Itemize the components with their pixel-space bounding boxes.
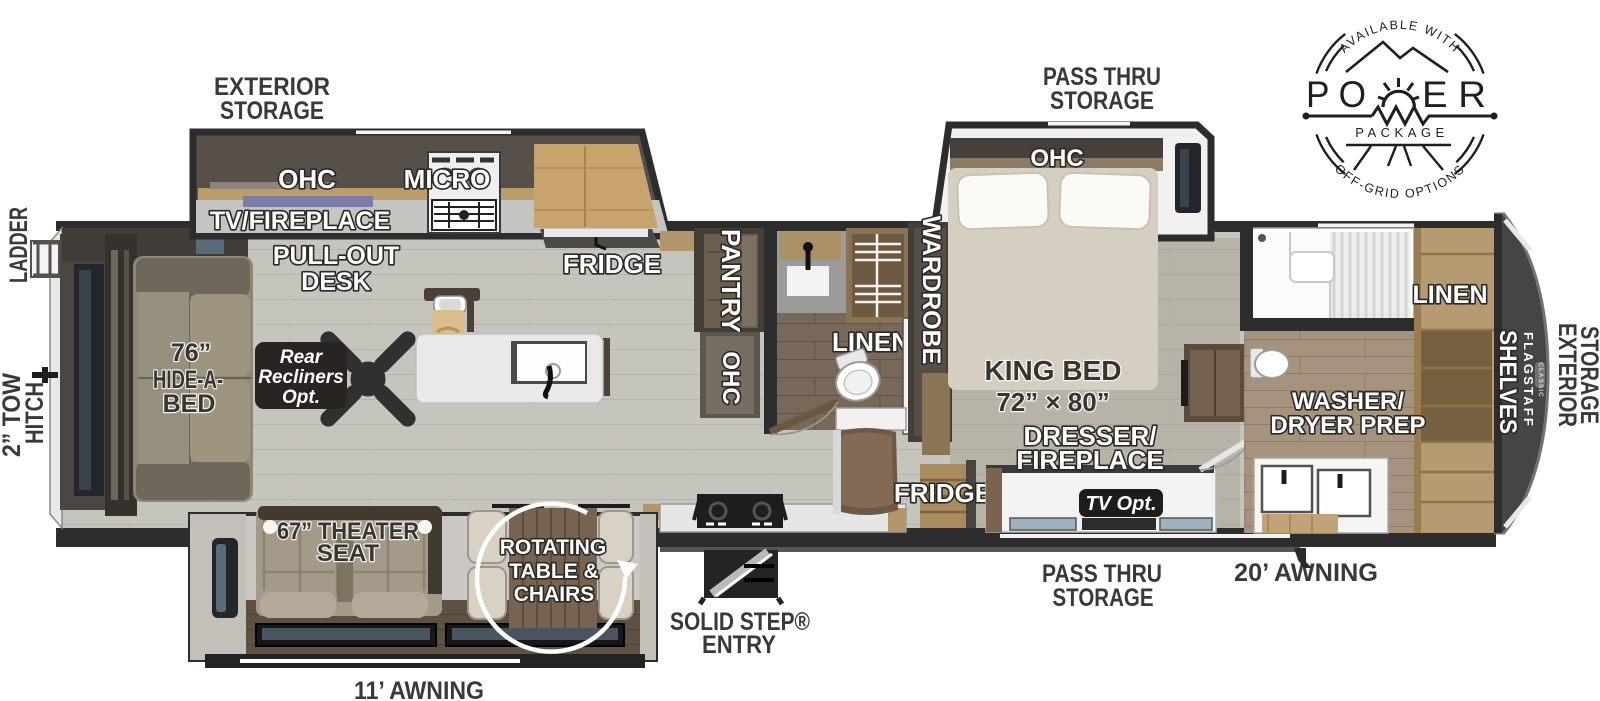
svg-text:CHAIRS: CHAIRS <box>514 583 595 606</box>
svg-text:HITCH: HITCH <box>21 382 49 444</box>
svg-text:E R: E R <box>1422 74 1486 115</box>
svg-text:76”: 76” <box>171 339 211 367</box>
svg-text:72” × 80”: 72” × 80” <box>996 387 1109 417</box>
svg-text:SEAT: SEAT <box>317 540 380 567</box>
svg-text:FLAGSTAFF: FLAGSTAFF <box>1521 332 1536 428</box>
svg-text:STORAGE: STORAGE <box>1053 584 1154 612</box>
svg-text:OHC: OHC <box>278 164 336 194</box>
svg-text:WARDROBE: WARDROBE <box>917 216 945 365</box>
svg-text:Recliners: Recliners <box>258 367 344 388</box>
svg-text:SHELVES: SHELVES <box>1494 330 1521 434</box>
svg-text:KING BED: KING BED <box>985 355 1122 386</box>
svg-text:OHC: OHC <box>1030 145 1083 172</box>
svg-text:Opt.: Opt. <box>282 387 320 408</box>
svg-text:LINEN: LINEN <box>1413 281 1488 309</box>
svg-text:Rear: Rear <box>280 347 324 368</box>
svg-text:TABLE &: TABLE & <box>509 560 598 583</box>
svg-text:TV/FIREPLACE: TV/FIREPLACE <box>210 207 391 235</box>
svg-text:STORAGE: STORAGE <box>1050 87 1154 115</box>
svg-text:ENTRY: ENTRY <box>702 631 776 659</box>
svg-text:DESK: DESK <box>301 268 370 296</box>
svg-text:MICRO: MICRO <box>404 164 491 194</box>
svg-text:TV Opt.: TV Opt. <box>1085 493 1156 515</box>
svg-text:BED: BED <box>163 390 216 418</box>
svg-text:PACKAGE: PACKAGE <box>1355 125 1448 140</box>
svg-text:CLASSIC: CLASSIC <box>1537 362 1544 398</box>
svg-text:ROTATING: ROTATING <box>500 536 607 559</box>
svg-text:LADDER: LADDER <box>5 207 33 283</box>
svg-text:DRYER PREP: DRYER PREP <box>1270 412 1425 439</box>
svg-text:OHC: OHC <box>717 351 744 404</box>
svg-text:FIREPLACE: FIREPLACE <box>1016 445 1163 475</box>
svg-text:11’ AWNING: 11’ AWNING <box>354 677 484 701</box>
svg-text:LINEN: LINEN <box>832 327 910 357</box>
svg-text:STORAGE: STORAGE <box>1575 326 1600 424</box>
svg-text:P O: P O <box>1306 74 1366 115</box>
svg-text:STORAGE: STORAGE <box>220 97 324 125</box>
svg-text:WASHER/: WASHER/ <box>1292 388 1404 415</box>
svg-text:PANTRY: PANTRY <box>716 229 746 333</box>
svg-text:PULL-OUT: PULL-OUT <box>273 242 399 270</box>
svg-text:FRIDGE: FRIDGE <box>563 249 661 279</box>
svg-text:FRIDGE: FRIDGE <box>894 478 992 508</box>
